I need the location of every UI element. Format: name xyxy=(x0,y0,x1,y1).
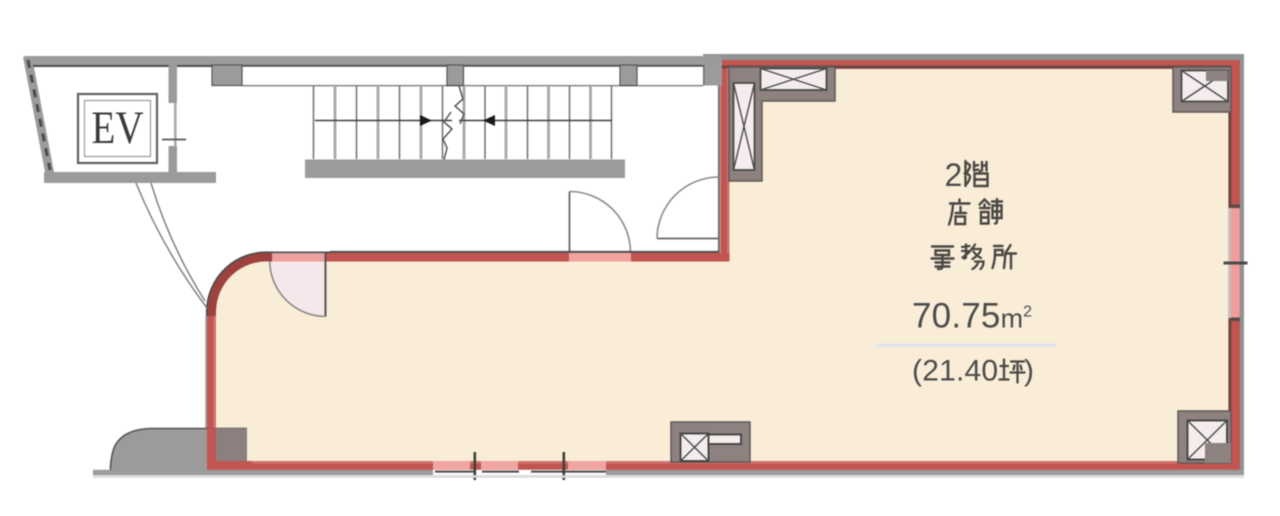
svg-text:2: 2 xyxy=(945,157,963,193)
svg-text:EV: EV xyxy=(92,102,144,154)
svg-text:): ) xyxy=(1024,355,1034,388)
svg-text:(21.40: (21.40 xyxy=(912,355,998,388)
